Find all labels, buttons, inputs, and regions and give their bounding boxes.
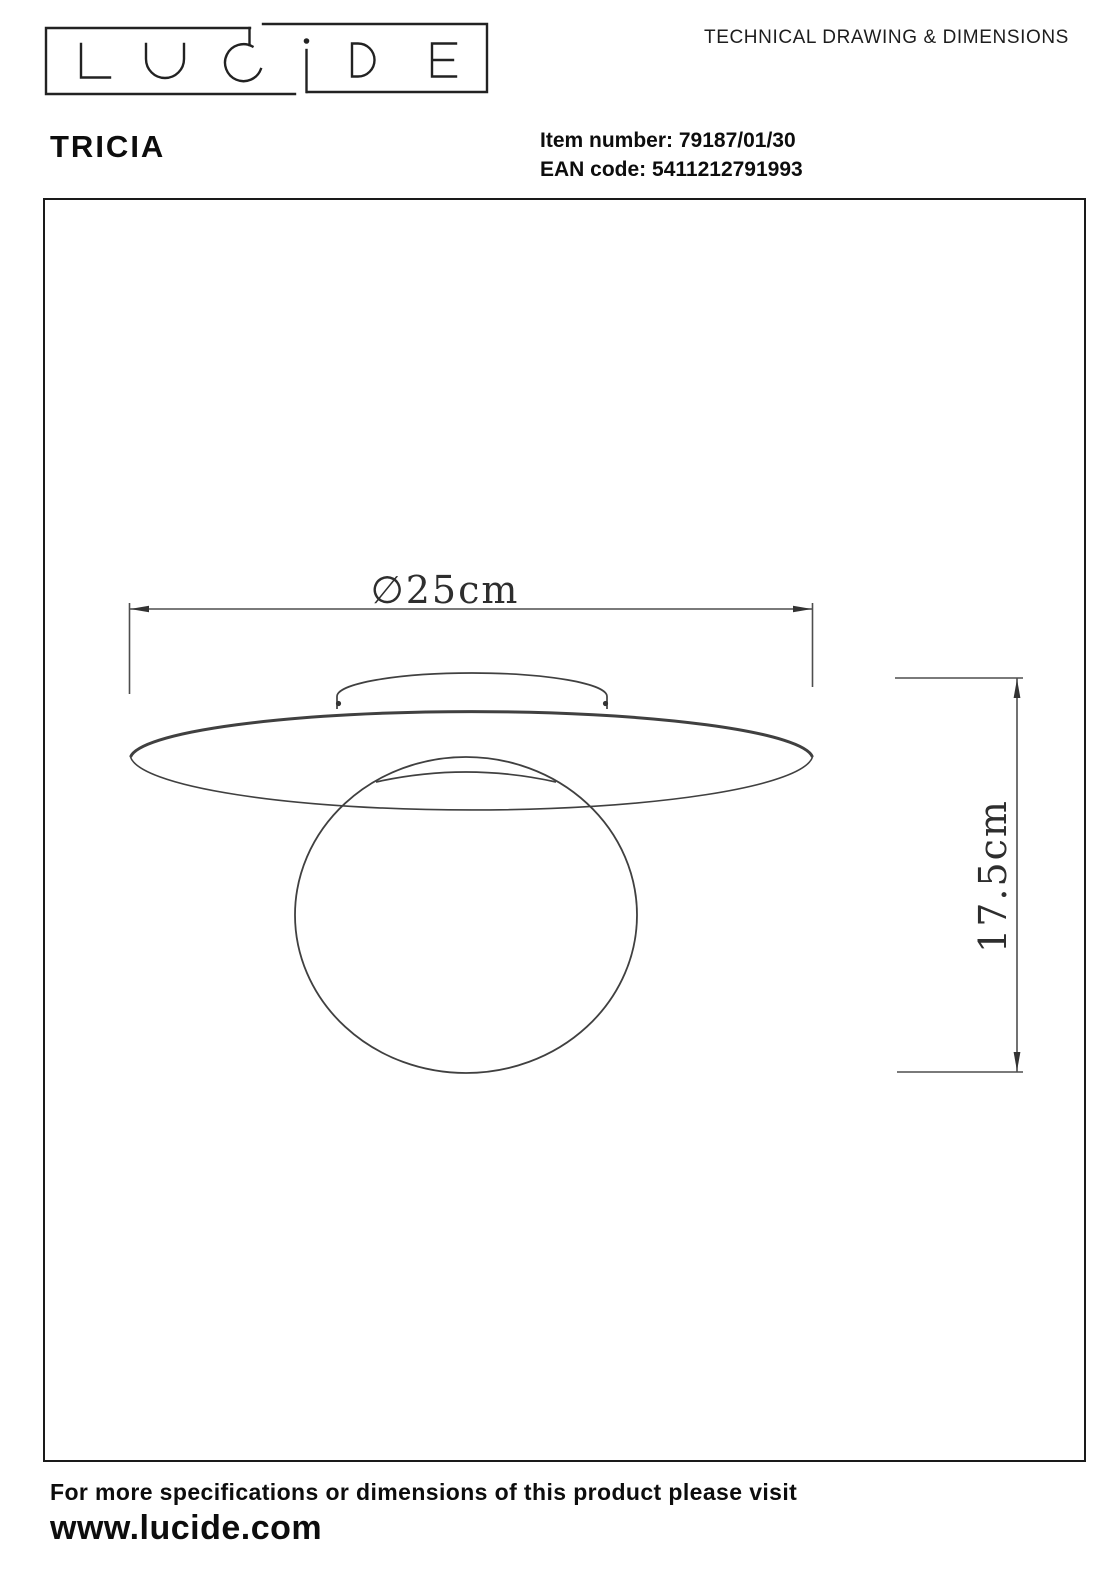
height-arrow-top — [1014, 679, 1021, 698]
height-dimension: 17.5cm — [895, 678, 1023, 1072]
lamp-disc-bottom-edge — [131, 757, 813, 810]
lamp-disc-top-edge — [131, 712, 813, 757]
height-arrow-bottom — [1014, 1052, 1021, 1071]
lamp-socket-collar — [376, 772, 556, 782]
drawing-frame — [44, 199, 1085, 1461]
lamp-cap-screw-right — [603, 701, 608, 706]
diameter-label: ∅25cm — [371, 568, 520, 612]
lamp-ceiling-cap — [337, 673, 607, 709]
diameter-arrow-right — [793, 606, 812, 612]
lamp-glass-sphere — [295, 757, 637, 1073]
ceiling-lamp-drawing — [131, 673, 813, 1073]
technical-drawing: ∅25cm 17.5cm — [0, 0, 1120, 1585]
diameter-dimension: ∅25cm — [130, 568, 813, 694]
footer-website: www.lucide.com — [50, 1509, 797, 1548]
diameter-arrow-left — [130, 606, 149, 612]
height-label: 17.5cm — [971, 799, 1015, 953]
footer: For more specifications or dimensions of… — [50, 1479, 797, 1548]
footer-note: For more specifications or dimensions of… — [50, 1479, 797, 1506]
lamp-cap-screw-left — [336, 701, 341, 706]
